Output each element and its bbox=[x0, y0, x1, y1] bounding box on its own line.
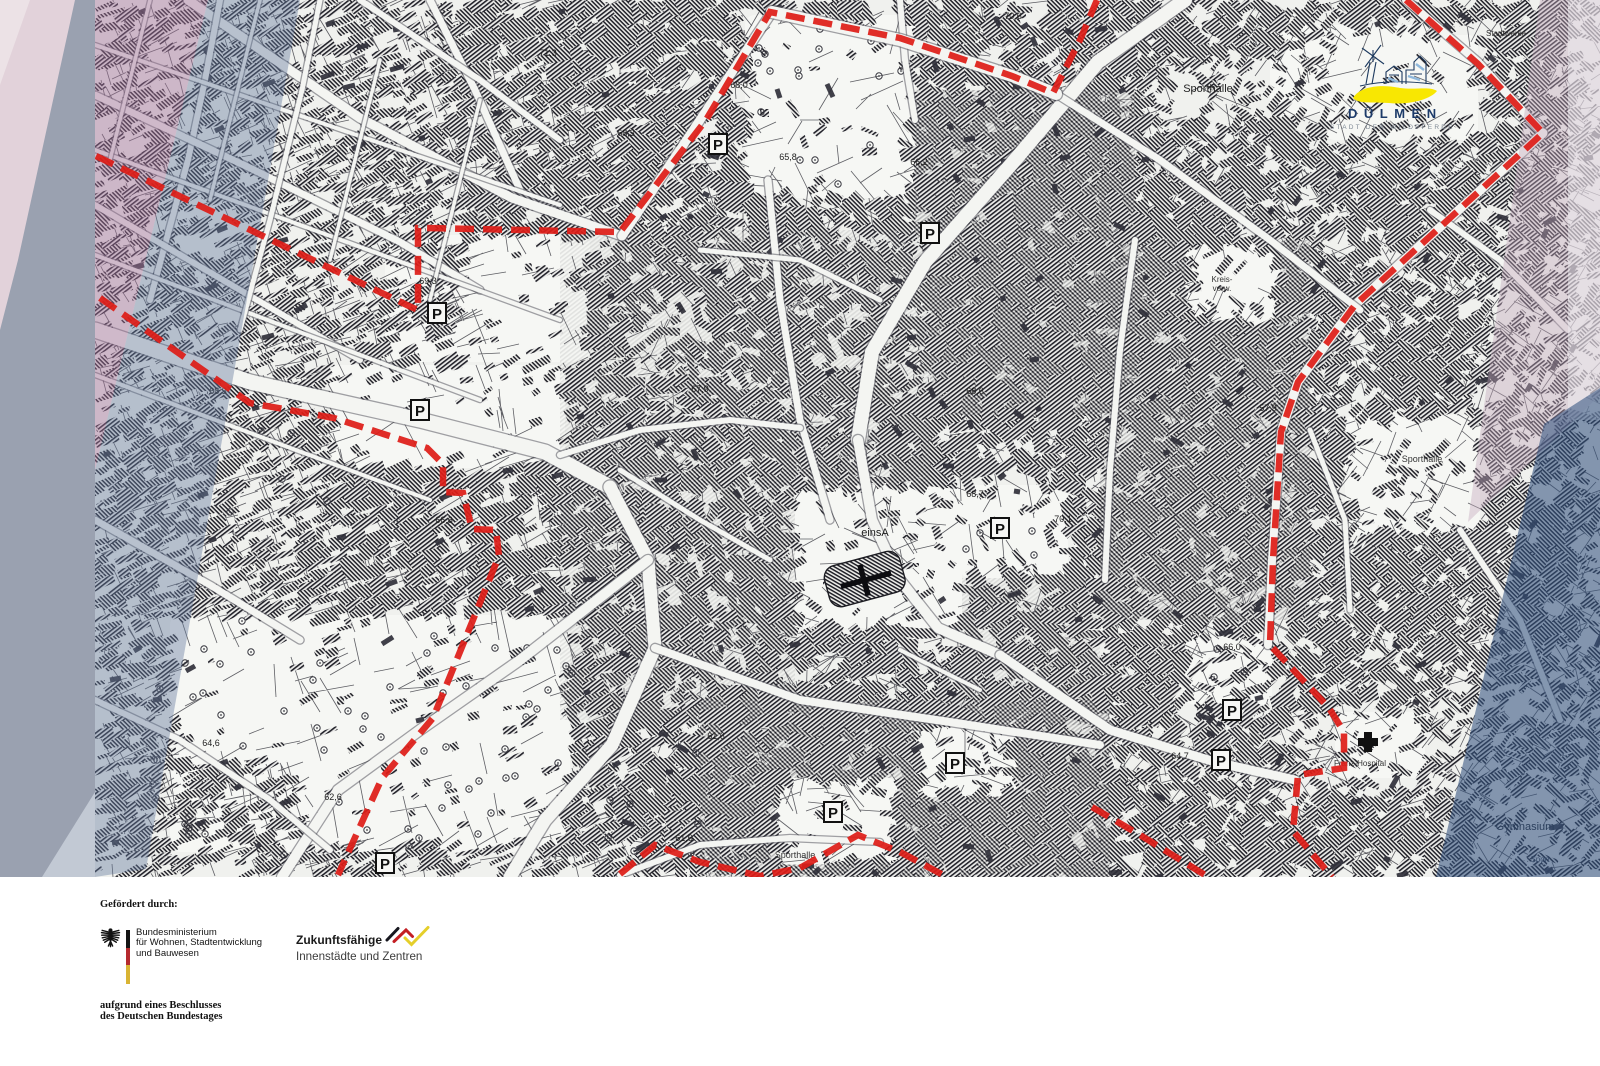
svg-text:67,9: 67,9 bbox=[691, 384, 709, 394]
svg-text:einsA: einsA bbox=[861, 527, 889, 539]
svg-text:68,3: 68,3 bbox=[617, 128, 635, 138]
svg-text:P: P bbox=[415, 403, 425, 420]
svg-text:61,6: 61,6 bbox=[707, 731, 725, 741]
svg-text:71,3: 71,3 bbox=[539, 48, 557, 58]
svg-text:P: P bbox=[380, 856, 390, 873]
svg-text:69,3: 69,3 bbox=[419, 276, 437, 286]
svg-text:Sporthalle: Sporthalle bbox=[1183, 83, 1233, 95]
svg-text:64,7: 64,7 bbox=[1171, 751, 1189, 761]
svg-text:P: P bbox=[1227, 703, 1237, 720]
svg-text:64,6: 64,6 bbox=[202, 738, 220, 748]
svg-text:P: P bbox=[828, 805, 838, 822]
svg-text:P: P bbox=[713, 137, 723, 154]
svg-text:66,2: 66,2 bbox=[910, 157, 928, 167]
svg-text:Kreis-: Kreis- bbox=[1212, 275, 1233, 284]
svg-text:verw.: verw. bbox=[1213, 284, 1232, 293]
svg-text:61,6: 61,6 bbox=[675, 833, 693, 843]
svg-text:Sporthalle: Sporthalle bbox=[1402, 454, 1443, 464]
svg-text:P: P bbox=[950, 756, 960, 773]
svg-text:P: P bbox=[925, 226, 935, 243]
svg-text:65,8: 65,8 bbox=[779, 152, 797, 162]
svg-text:68,0: 68,0 bbox=[730, 80, 748, 90]
svg-text:P: P bbox=[1216, 753, 1226, 770]
svg-text:70,1: 70,1 bbox=[1054, 514, 1072, 524]
svg-text:STADT DER WILDPFERDE: STADT DER WILDPFERDE bbox=[1330, 124, 1455, 131]
svg-text:Sporthalle: Sporthalle bbox=[775, 850, 816, 860]
svg-text:66,0: 66,0 bbox=[1223, 642, 1241, 652]
svg-text:68,7: 68,7 bbox=[966, 489, 984, 499]
svg-text:DÜLMEN: DÜLMEN bbox=[1348, 106, 1443, 121]
svg-text:62,6: 62,6 bbox=[324, 792, 342, 802]
svg-text:66,6: 66,6 bbox=[435, 515, 453, 525]
svg-text:P: P bbox=[432, 306, 442, 323]
svg-text:70,6: 70,6 bbox=[1004, 11, 1022, 21]
svg-text:P: P bbox=[995, 521, 1005, 538]
svg-text:57,9: 57,9 bbox=[1259, 403, 1277, 413]
svg-text:Stadtwerke: Stadtwerke bbox=[1486, 29, 1527, 38]
svg-text:68,6: 68,6 bbox=[966, 386, 984, 396]
